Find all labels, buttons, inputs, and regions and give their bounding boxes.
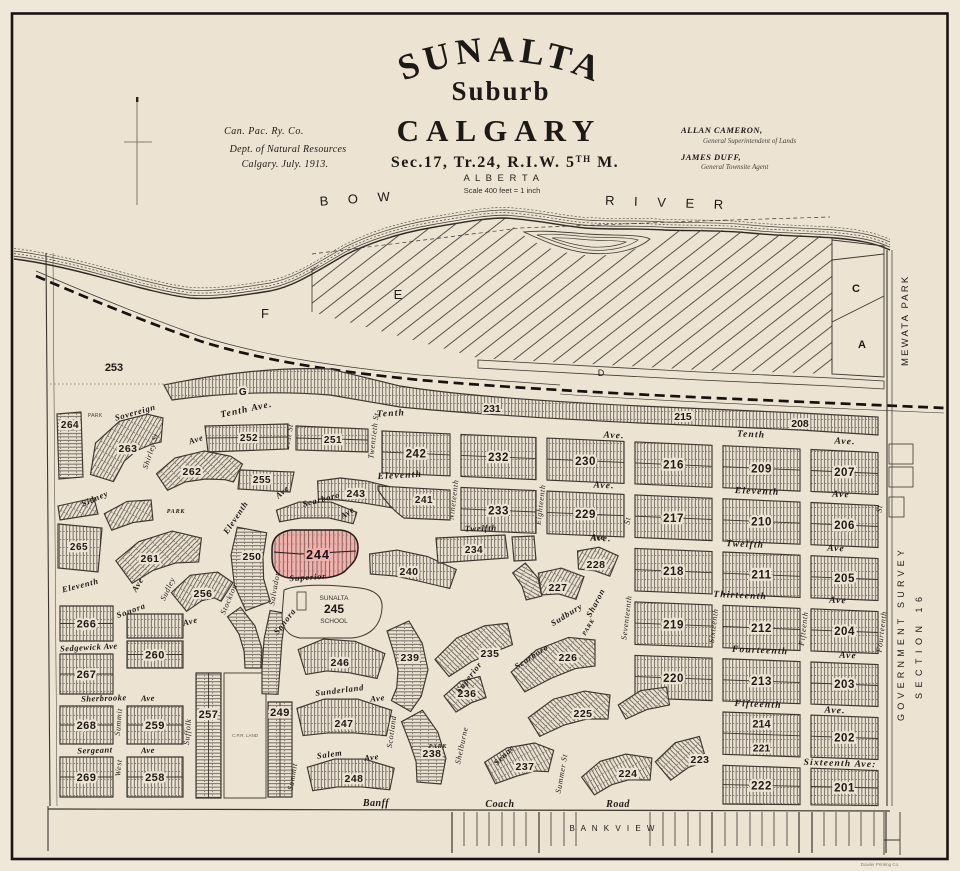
svg-text:D: D bbox=[598, 368, 605, 378]
svg-text:210: 210 bbox=[751, 517, 772, 529]
svg-text:St: St bbox=[623, 516, 633, 525]
svg-text:Ave.: Ave. bbox=[833, 436, 856, 447]
svg-text:232: 232 bbox=[488, 452, 509, 464]
svg-text:JAMES DUFF,: JAMES DUFF, bbox=[680, 152, 741, 162]
svg-text:Ave: Ave bbox=[589, 532, 605, 543]
svg-text:243: 243 bbox=[346, 488, 365, 500]
svg-text:St: St bbox=[875, 504, 885, 513]
svg-text:Coach: Coach bbox=[485, 799, 514, 810]
svg-text:Twelfth: Twelfth bbox=[465, 522, 498, 533]
svg-text:Scale 400 feet = 1 inch: Scale 400 feet = 1 inch bbox=[464, 186, 541, 195]
svg-text:213: 213 bbox=[751, 676, 772, 688]
svg-text:228: 228 bbox=[586, 559, 605, 571]
svg-text:241: 241 bbox=[415, 495, 433, 506]
svg-text:231: 231 bbox=[483, 403, 501, 415]
svg-text:221: 221 bbox=[753, 743, 771, 755]
svg-text:252: 252 bbox=[240, 433, 258, 444]
svg-text:Ave: Ave bbox=[369, 692, 386, 704]
svg-text:202: 202 bbox=[834, 732, 855, 744]
svg-text:Ave: Ave bbox=[140, 745, 155, 756]
svg-text:267: 267 bbox=[77, 669, 97, 681]
svg-text:Ave: Ave bbox=[828, 596, 847, 607]
svg-text:218: 218 bbox=[663, 566, 684, 578]
svg-text:206: 206 bbox=[834, 520, 855, 532]
svg-text:Dowler Printing Co.: Dowler Printing Co. bbox=[861, 862, 900, 867]
svg-text:Tenth: Tenth bbox=[376, 408, 405, 419]
svg-text:SECTION 16: SECTION 16 bbox=[914, 591, 924, 699]
svg-text:SUNALTA: SUNALTA bbox=[319, 595, 349, 602]
svg-text:215: 215 bbox=[674, 411, 692, 423]
svg-text:242: 242 bbox=[406, 448, 427, 460]
svg-text:224: 224 bbox=[618, 768, 637, 780]
svg-text:General Townsite Agent: General Townsite Agent bbox=[701, 163, 769, 171]
svg-text:217: 217 bbox=[663, 513, 684, 525]
svg-text:Ave.: Ave. bbox=[592, 480, 615, 491]
svg-text:GOVERNMENT SURVEY: GOVERNMENT SURVEY bbox=[896, 546, 906, 721]
svg-text:219: 219 bbox=[663, 620, 684, 632]
svg-text:204: 204 bbox=[834, 626, 855, 638]
svg-text:249: 249 bbox=[270, 707, 290, 719]
svg-text:MEWATA PARK: MEWATA PARK bbox=[900, 275, 911, 366]
svg-text:237: 237 bbox=[515, 761, 534, 773]
svg-text:248: 248 bbox=[344, 773, 363, 785]
svg-text:Road: Road bbox=[605, 799, 630, 810]
svg-text:263: 263 bbox=[118, 443, 137, 455]
svg-text:222: 222 bbox=[751, 780, 772, 792]
svg-text:Ave: Ave bbox=[838, 651, 857, 662]
svg-text:General Superintendent of Land: General Superintendent of Lands bbox=[703, 137, 796, 145]
svg-text:265: 265 bbox=[70, 542, 88, 553]
svg-text:245: 245 bbox=[324, 602, 344, 616]
svg-text:Suburb: Suburb bbox=[451, 76, 550, 106]
svg-text:235: 235 bbox=[480, 648, 499, 660]
svg-text:223: 223 bbox=[690, 754, 709, 766]
svg-text:Eleventh: Eleventh bbox=[734, 486, 780, 498]
svg-text:234: 234 bbox=[465, 545, 483, 556]
svg-text:250: 250 bbox=[242, 551, 261, 563]
svg-text:269: 269 bbox=[77, 772, 97, 784]
svg-text:201: 201 bbox=[834, 782, 855, 794]
svg-text:240: 240 bbox=[399, 566, 418, 578]
svg-text:216: 216 bbox=[663, 460, 684, 472]
svg-text:A: A bbox=[858, 339, 866, 351]
svg-text:209: 209 bbox=[751, 463, 772, 475]
svg-text:West: West bbox=[113, 759, 123, 777]
svg-text:262: 262 bbox=[182, 466, 201, 478]
svg-text:264: 264 bbox=[61, 420, 79, 431]
svg-text:Fifteenth: Fifteenth bbox=[733, 699, 782, 711]
svg-text:266: 266 bbox=[77, 619, 97, 631]
svg-text:Sherbrooke: Sherbrooke bbox=[81, 692, 127, 704]
svg-text:Banff: Banff bbox=[362, 798, 390, 809]
svg-text:Ave: Ave bbox=[826, 544, 845, 555]
svg-text:Ave.: Ave. bbox=[602, 430, 625, 441]
svg-text:211: 211 bbox=[751, 570, 771, 582]
svg-text:203: 203 bbox=[834, 679, 855, 691]
svg-text:256: 256 bbox=[193, 588, 212, 600]
svg-text:PARK: PARK bbox=[429, 744, 448, 750]
svg-text:207: 207 bbox=[834, 467, 855, 479]
svg-text:PARK: PARK bbox=[167, 509, 186, 515]
svg-text:212: 212 bbox=[751, 623, 772, 635]
svg-text:C: C bbox=[852, 283, 860, 295]
svg-text:230: 230 bbox=[575, 456, 596, 468]
svg-text:255: 255 bbox=[253, 475, 271, 486]
svg-text:253: 253 bbox=[105, 362, 123, 374]
svg-text:205: 205 bbox=[834, 573, 855, 585]
svg-text:A L B E R T A: A L B E R T A bbox=[464, 173, 541, 184]
svg-text:247: 247 bbox=[334, 718, 353, 730]
svg-text:Dept. of Natural Resources: Dept. of Natural Resources bbox=[229, 144, 347, 155]
svg-text:225: 225 bbox=[573, 708, 592, 720]
svg-text:268: 268 bbox=[77, 720, 97, 732]
svg-text:257: 257 bbox=[199, 709, 219, 721]
svg-text:Sergeant: Sergeant bbox=[77, 744, 113, 755]
svg-text:Calgary. July. 1913.: Calgary. July. 1913. bbox=[242, 159, 329, 170]
svg-text:227: 227 bbox=[548, 582, 567, 594]
svg-text:261: 261 bbox=[140, 553, 159, 565]
svg-text:226: 226 bbox=[558, 652, 577, 664]
svg-text:259: 259 bbox=[145, 720, 165, 732]
svg-text:251: 251 bbox=[324, 435, 342, 446]
svg-text:244: 244 bbox=[306, 548, 330, 562]
svg-text:Can. Pac. Ry. Co.: Can. Pac. Ry. Co. bbox=[224, 126, 304, 137]
svg-text:E: E bbox=[394, 287, 403, 302]
svg-text:208: 208 bbox=[791, 418, 809, 430]
svg-text:F: F bbox=[261, 306, 269, 321]
svg-text:Ave: Ave bbox=[831, 490, 850, 501]
svg-text:Tenth: Tenth bbox=[737, 429, 766, 440]
svg-text:Twelfth: Twelfth bbox=[726, 539, 765, 551]
svg-text:SCHOOL: SCHOOL bbox=[320, 618, 348, 625]
svg-text:220: 220 bbox=[663, 673, 684, 685]
svg-text:ALLAN CAMERON,: ALLAN CAMERON, bbox=[680, 125, 763, 135]
svg-text:229: 229 bbox=[575, 509, 596, 521]
svg-text:246: 246 bbox=[330, 657, 349, 669]
svg-text:258: 258 bbox=[145, 772, 165, 784]
svg-text:Ave: Ave bbox=[140, 693, 155, 704]
svg-text:G: G bbox=[239, 387, 247, 398]
svg-text:233: 233 bbox=[488, 505, 509, 517]
svg-text:C.P.R. LAND: C.P.R. LAND bbox=[232, 733, 259, 738]
svg-text:239: 239 bbox=[400, 652, 419, 664]
svg-text:Ave.: Ave. bbox=[823, 705, 846, 716]
svg-text:260: 260 bbox=[145, 650, 165, 662]
svg-text:B A N K V I E W: B A N K V I E W bbox=[570, 824, 657, 833]
svg-text:PARK: PARK bbox=[88, 413, 103, 419]
svg-text:CALGARY: CALGARY bbox=[397, 113, 602, 148]
svg-text:214: 214 bbox=[752, 718, 771, 730]
